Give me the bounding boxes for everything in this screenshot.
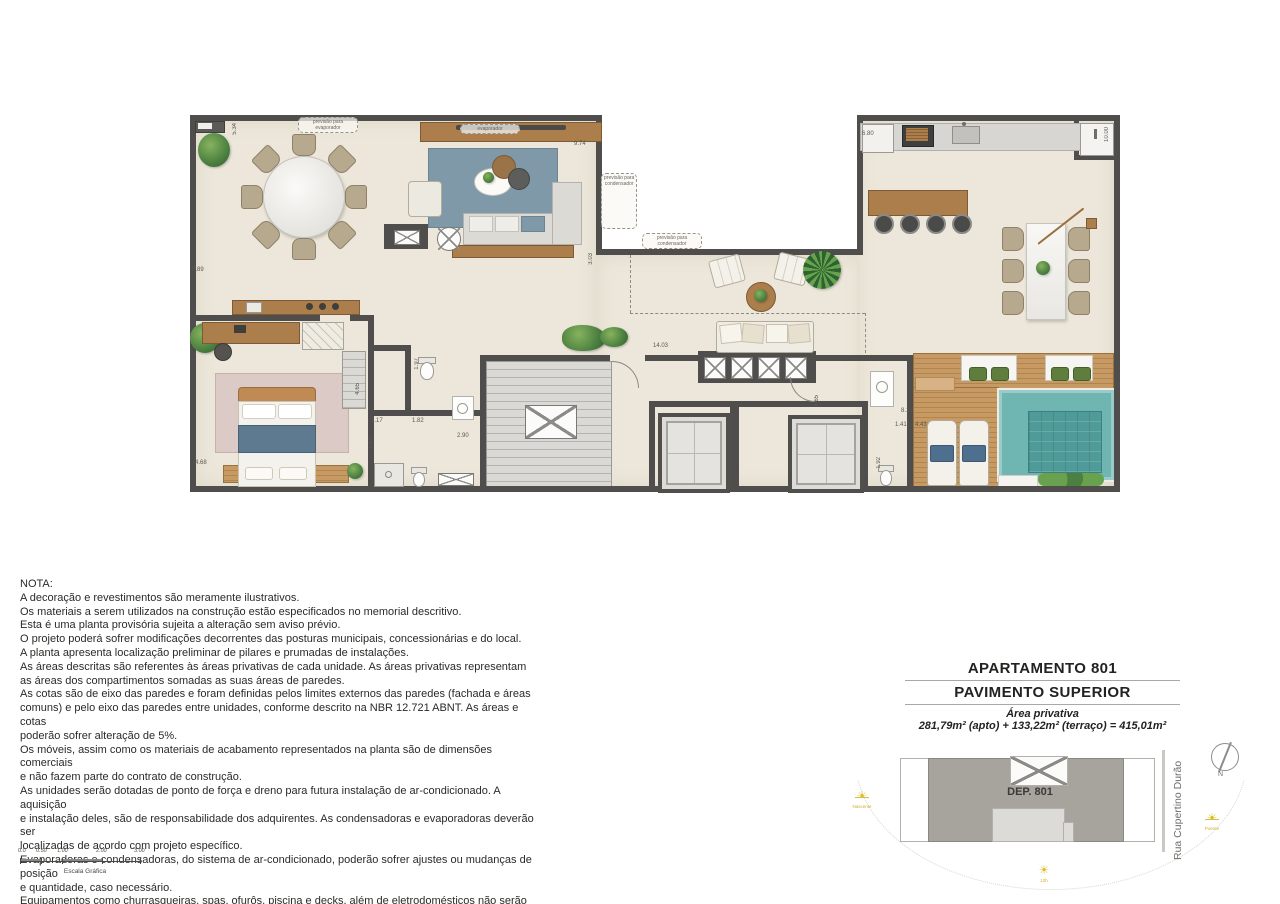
table-plant [483, 172, 494, 183]
gourmet-chair [1068, 291, 1090, 315]
wall-lifts [730, 407, 739, 492]
plant [198, 133, 230, 167]
bed-pillow [278, 404, 312, 419]
dimension-label: 2.90 [457, 433, 469, 440]
street-line [1162, 750, 1165, 852]
dimension-label: 1.92 [876, 457, 883, 469]
sunset-label: Poente [1197, 826, 1227, 831]
keyplan-unit-label: DEP. 801 [985, 786, 1075, 798]
stair-void [525, 405, 577, 439]
compass-needle [1218, 742, 1231, 772]
gourmet-chair [1068, 227, 1090, 251]
outdoor-sofa-cushion [787, 323, 811, 344]
wall-hall [480, 355, 486, 492]
dimension-label: 1.97 [414, 358, 421, 370]
scale-bar-segment [20, 859, 41, 861]
shower-drain [385, 471, 392, 478]
dimension-label: 5.34 [232, 123, 239, 135]
bar-stool [952, 214, 972, 234]
vanity-basin [876, 381, 888, 393]
bed-towel [245, 467, 273, 480]
counter-burner [306, 303, 313, 310]
bath-vent [438, 473, 474, 486]
terrace-boundary-dashed [630, 313, 865, 314]
dimension-label: 1.17 [371, 418, 383, 425]
corner-bench-cushion [198, 123, 212, 129]
deck-chair-green [1051, 367, 1069, 381]
elevator [788, 415, 864, 493]
pool-inner [1028, 411, 1102, 473]
scale-tick [41, 858, 42, 864]
dimension-label: 9.74 [574, 141, 586, 148]
closet [302, 322, 344, 350]
fridge [862, 124, 894, 153]
bar-stool [874, 214, 894, 234]
elevator-cab [666, 421, 722, 485]
desk [202, 322, 300, 344]
gourmet-chair [1002, 291, 1024, 315]
wall [190, 115, 196, 492]
deck-chair-green [969, 367, 987, 381]
scale-bar-segment [62, 859, 102, 861]
lounger-pillow [930, 445, 954, 462]
bed-pillow [242, 404, 276, 419]
noon-sun-icon: ☀ [1036, 864, 1052, 876]
keyplan-terrace-step [1063, 822, 1074, 842]
desk-chair [214, 343, 232, 361]
wall [190, 486, 1120, 492]
laptop [234, 325, 246, 333]
bed-throw [238, 425, 316, 453]
annotation-previsao-condensador: previsão para condensador [601, 173, 637, 229]
sofa-chaise [552, 182, 582, 245]
wall [190, 115, 602, 121]
plant [600, 327, 628, 347]
gourmet-chair [1068, 259, 1090, 283]
floor-plan: previsão para evaporador evaporador prev… [190, 115, 1120, 492]
key-plan: DEP. 801 Rua Cupertino Durão N ☀ Nascent… [850, 738, 1260, 898]
scale-tick [102, 858, 103, 864]
dining-chair [241, 185, 263, 209]
wall-wc [405, 345, 411, 410]
wall-lifts [649, 401, 868, 407]
sofa-back-shelf [452, 245, 574, 258]
dining-chair [292, 238, 316, 260]
deck-chair-green [991, 367, 1009, 381]
internal-stair [342, 351, 366, 409]
scale-tick [62, 858, 63, 864]
wall-hall [816, 355, 862, 361]
vent-x-panel [758, 357, 780, 379]
wall-bedroom [196, 315, 320, 321]
scale-tick-label: 3.00 [134, 848, 145, 854]
counter-burner [332, 303, 339, 310]
dimension-label: 3.03 [588, 253, 595, 265]
sofa-cushion [469, 216, 493, 232]
sunrise-label: Nascente [847, 804, 877, 809]
vent-x-panel [704, 357, 726, 379]
wall-sauna [862, 355, 913, 361]
scale-tick-label: 2.00 [96, 848, 107, 854]
armchair [408, 181, 442, 217]
annotation-previsao-evaporador: previsão para evaporador [298, 117, 358, 133]
dimension-label: 10.00 [1104, 127, 1111, 142]
scale-tick [140, 858, 141, 864]
outdoor-sofa-cushion [766, 324, 788, 343]
bed-towel [279, 467, 307, 480]
nota-title: NOTA: [20, 578, 540, 592]
divider [905, 704, 1180, 705]
vent-x-panel [731, 357, 753, 379]
dimension-label: 14.03 [653, 343, 668, 350]
sofa-cushion [521, 216, 545, 232]
area-value: 281,79m² (apto) + 133,22m² (terraço) = 4… [905, 720, 1180, 732]
vent-x-panel [785, 357, 807, 379]
palm-plant [803, 251, 841, 289]
deck-console [915, 377, 955, 391]
kitchen-sink [952, 126, 980, 144]
annotation-evaporador: evaporador [460, 124, 520, 134]
sunset-icon: ☀ [1204, 812, 1220, 820]
lounger-pillow [962, 445, 986, 462]
sunrise-icon: ☀ [854, 790, 870, 798]
toilet [420, 362, 434, 380]
elevator-cab [796, 423, 856, 485]
wall-bedroom [350, 315, 368, 321]
counter-burner [319, 303, 326, 310]
title-block: APARTAMENTO 801 PAVIMENTO SUPERIOR Área … [905, 660, 1180, 732]
terrace-boundary-dashed [630, 255, 631, 313]
wall [857, 115, 1120, 121]
counter-sink [246, 302, 262, 313]
dining-chair [345, 185, 367, 209]
toilet [413, 472, 425, 487]
scale-caption: Escala Gráfica [40, 868, 130, 875]
tv-console-panel [394, 230, 420, 245]
vanity-basin [457, 403, 468, 414]
scale-tick [20, 858, 21, 864]
dimension-label: 0.89 [192, 267, 204, 274]
toilet [880, 470, 892, 486]
bar-stool [900, 214, 920, 234]
compass-north-label: N [1218, 771, 1223, 778]
dining-chair [292, 134, 316, 156]
compass-icon [1211, 743, 1239, 771]
island-tap [1094, 129, 1097, 139]
table-plant [754, 289, 767, 302]
dimension-label: 1.41 [895, 422, 907, 429]
deck-chair-green [1073, 367, 1091, 381]
wall [1114, 115, 1120, 492]
gourmet-chair [1002, 227, 1024, 251]
dimension-label: 4.65 [814, 395, 821, 407]
sink-faucet [962, 122, 966, 126]
floor-title: PAVIMENTO SUPERIOR [905, 684, 1180, 701]
plant [347, 463, 363, 479]
street-label: Rua Cupertino Durão [1172, 744, 1184, 860]
wall-sauna [907, 355, 913, 492]
bar-stool [926, 214, 946, 234]
dimension-label: 4.65 [355, 383, 362, 395]
dimension-label: 4.43 [915, 422, 927, 429]
divider [905, 680, 1180, 681]
area-label: Área privativa [905, 708, 1180, 720]
terrace-boundary-dashed [865, 313, 866, 353]
pendant-lamp [1086, 218, 1097, 229]
scale-bar: 0.0 0.50 1.00 2.00 3.00 Escala Gráfica [18, 848, 158, 884]
side-table-dark [508, 168, 530, 190]
grill-grate [906, 128, 928, 141]
scale-tick-label: 0.50 [36, 848, 47, 854]
keyplan-terrace [992, 808, 1065, 842]
hedge [1038, 473, 1104, 486]
floorplan-sheet: previsão para evaporador evaporador prev… [0, 0, 1280, 904]
scale-bar-line [20, 861, 140, 862]
dimension-label: 6.80 [862, 131, 874, 138]
dimension-label: 1.60 [368, 437, 375, 449]
wall-wc [368, 345, 408, 351]
elevator [658, 413, 730, 493]
dimension-label: 8.11 [901, 408, 912, 415]
gourmet-chair [1002, 259, 1024, 283]
outdoor-sofa-cushion [741, 323, 765, 344]
outdoor-sofa-cushion [719, 323, 743, 344]
keyplan-void [1010, 756, 1068, 786]
wall-hall [480, 355, 610, 361]
scale-tick-label: 0.0 [18, 848, 26, 854]
noon-sun-label: 12h [1029, 878, 1059, 883]
table-plant [1036, 261, 1050, 275]
annotation-previsao-condensador: previsão para condensador [642, 233, 702, 249]
dimension-label: 4.68 [195, 460, 207, 467]
apartment-title: APARTAMENTO 801 [905, 660, 1180, 677]
dimension-label: 1.82 [412, 418, 424, 425]
bar-table [868, 190, 968, 216]
sofa-cushion [495, 216, 519, 232]
wall-lifts [649, 401, 655, 492]
pouf [437, 227, 461, 251]
wall-hall [645, 355, 700, 361]
scale-tick-label: 1.00 [57, 848, 68, 854]
